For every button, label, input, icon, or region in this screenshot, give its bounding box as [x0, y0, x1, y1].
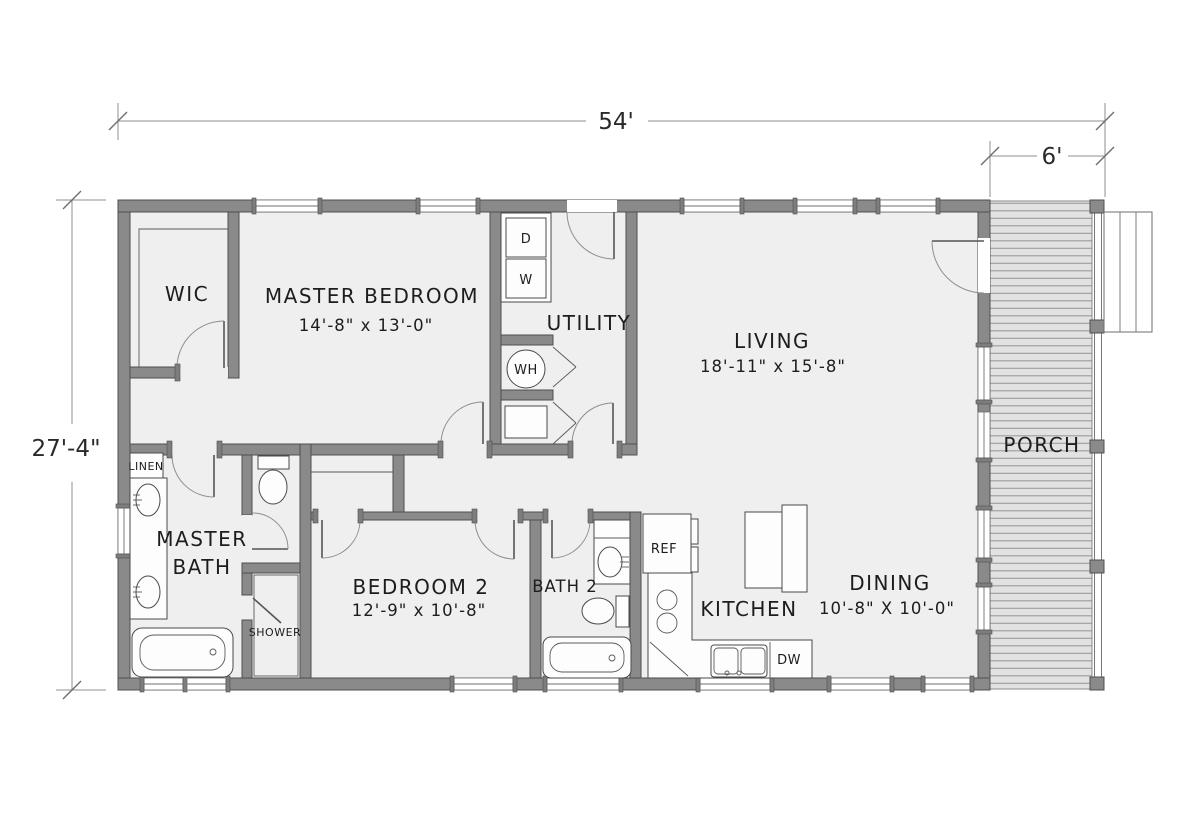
- window: [827, 676, 894, 692]
- refrigerator-label: REF: [651, 542, 677, 557]
- room-dims-bedroom2: 12'-9" x 10'-8": [352, 601, 486, 620]
- window: [976, 583, 992, 634]
- porch-steps: [1104, 212, 1152, 332]
- room-dims-living: 18'-11" x 15'-8": [700, 357, 846, 376]
- room-label-bedroom2: BEDROOM 2: [353, 575, 490, 599]
- window: [187, 676, 230, 692]
- master-tub: [132, 628, 233, 677]
- overall-width-dimension: 54': [598, 109, 634, 135]
- porch-width-dimension: 6': [1042, 144, 1063, 170]
- room-label-shower: SHOWER: [249, 626, 301, 639]
- window: [680, 198, 744, 214]
- bath2-toilet: [582, 596, 629, 627]
- room-label-master-bath-line1: MASTER: [156, 527, 247, 551]
- window: [450, 676, 517, 692]
- overall-depth-dimension: 27'-4": [31, 436, 100, 462]
- floor-plan-page: 54' 6' 27'-4": [0, 0, 1200, 818]
- window: [416, 198, 480, 214]
- room-label-linen: LINEN: [128, 460, 163, 473]
- window: [976, 506, 992, 562]
- dryer-label: D: [521, 232, 532, 247]
- room-dims-dining: 10'-8" X 10'-0": [819, 599, 955, 618]
- bath2-vanity: [594, 520, 630, 584]
- window: [140, 676, 187, 692]
- master-toilet: [258, 456, 289, 504]
- room-label-living: LIVING: [734, 329, 810, 353]
- room-label-master-bedroom: MASTER BEDROOM: [265, 284, 479, 308]
- water-heater-label: WH: [514, 363, 538, 378]
- window: [252, 198, 322, 214]
- room-dims-master-bedroom: 14'-8" x 13'-0": [299, 316, 433, 335]
- window: [976, 343, 992, 404]
- room-label-porch: PORCH: [1003, 433, 1080, 457]
- bath2-tub: [543, 637, 631, 678]
- window: [876, 198, 940, 214]
- room-label-wic: WIC: [165, 282, 209, 306]
- window: [976, 412, 992, 462]
- floor-plan-drawing: 54' 6' 27'-4": [0, 0, 1200, 818]
- washer-dryer-unit: [501, 213, 551, 302]
- room-label-bath2: BATH 2: [532, 577, 598, 596]
- room-label-dining: DINING: [849, 571, 931, 595]
- utility-pan: [505, 406, 547, 438]
- window: [921, 676, 974, 692]
- window: [793, 198, 857, 214]
- dishwasher-label: DW: [777, 653, 801, 668]
- kitchen-island: [745, 505, 807, 592]
- room-label-utility: UTILITY: [547, 311, 632, 335]
- kitchen-sink: [711, 645, 767, 677]
- washer-label: W: [519, 273, 532, 288]
- room-label-master-bath-line2: BATH: [172, 555, 231, 579]
- room-label-kitchen: KITCHEN: [700, 597, 797, 621]
